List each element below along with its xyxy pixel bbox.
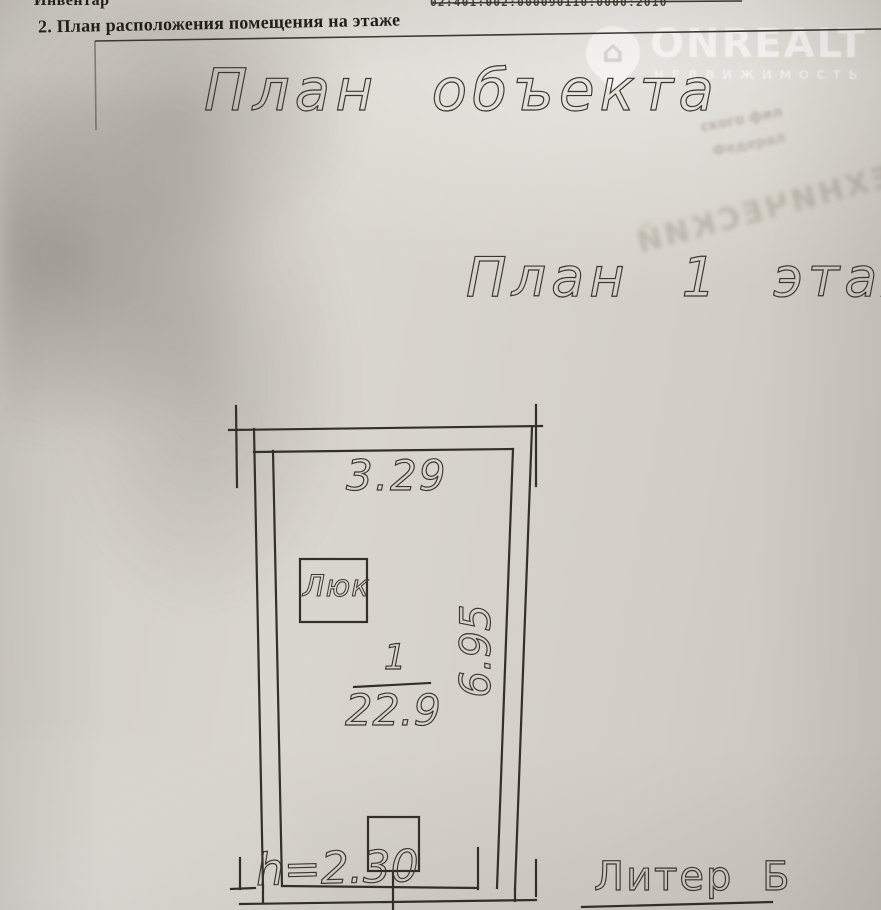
section-heading: 2. План расположения помещения на этаже (38, 10, 401, 38)
building-letter-underline (582, 902, 772, 907)
building-letter-label: Литер Б (594, 854, 792, 900)
hatch-label: Люк (303, 569, 370, 603)
floor-title: План 1 этаж (466, 246, 881, 309)
ceiling-height-label: h=2.30 (255, 841, 419, 896)
inventory-number-fragment: Инвентар (34, 0, 110, 10)
plan-title: План объекта (204, 56, 719, 124)
cadastral-number: 02:401:002:000090110:0000:2010 (430, 0, 668, 9)
top-dimension-label: 3.29 (346, 451, 448, 500)
room-area-label: 22.9 (338, 686, 448, 736)
scanned-floor-plan-document: Инвентар 02:401:002:000090110:0000:2010 … (0, 0, 881, 910)
side-dimension-label: 6.95 (451, 591, 495, 711)
bleed-through-text: Федерал (711, 130, 787, 160)
room-number-label: 1 (375, 638, 415, 678)
